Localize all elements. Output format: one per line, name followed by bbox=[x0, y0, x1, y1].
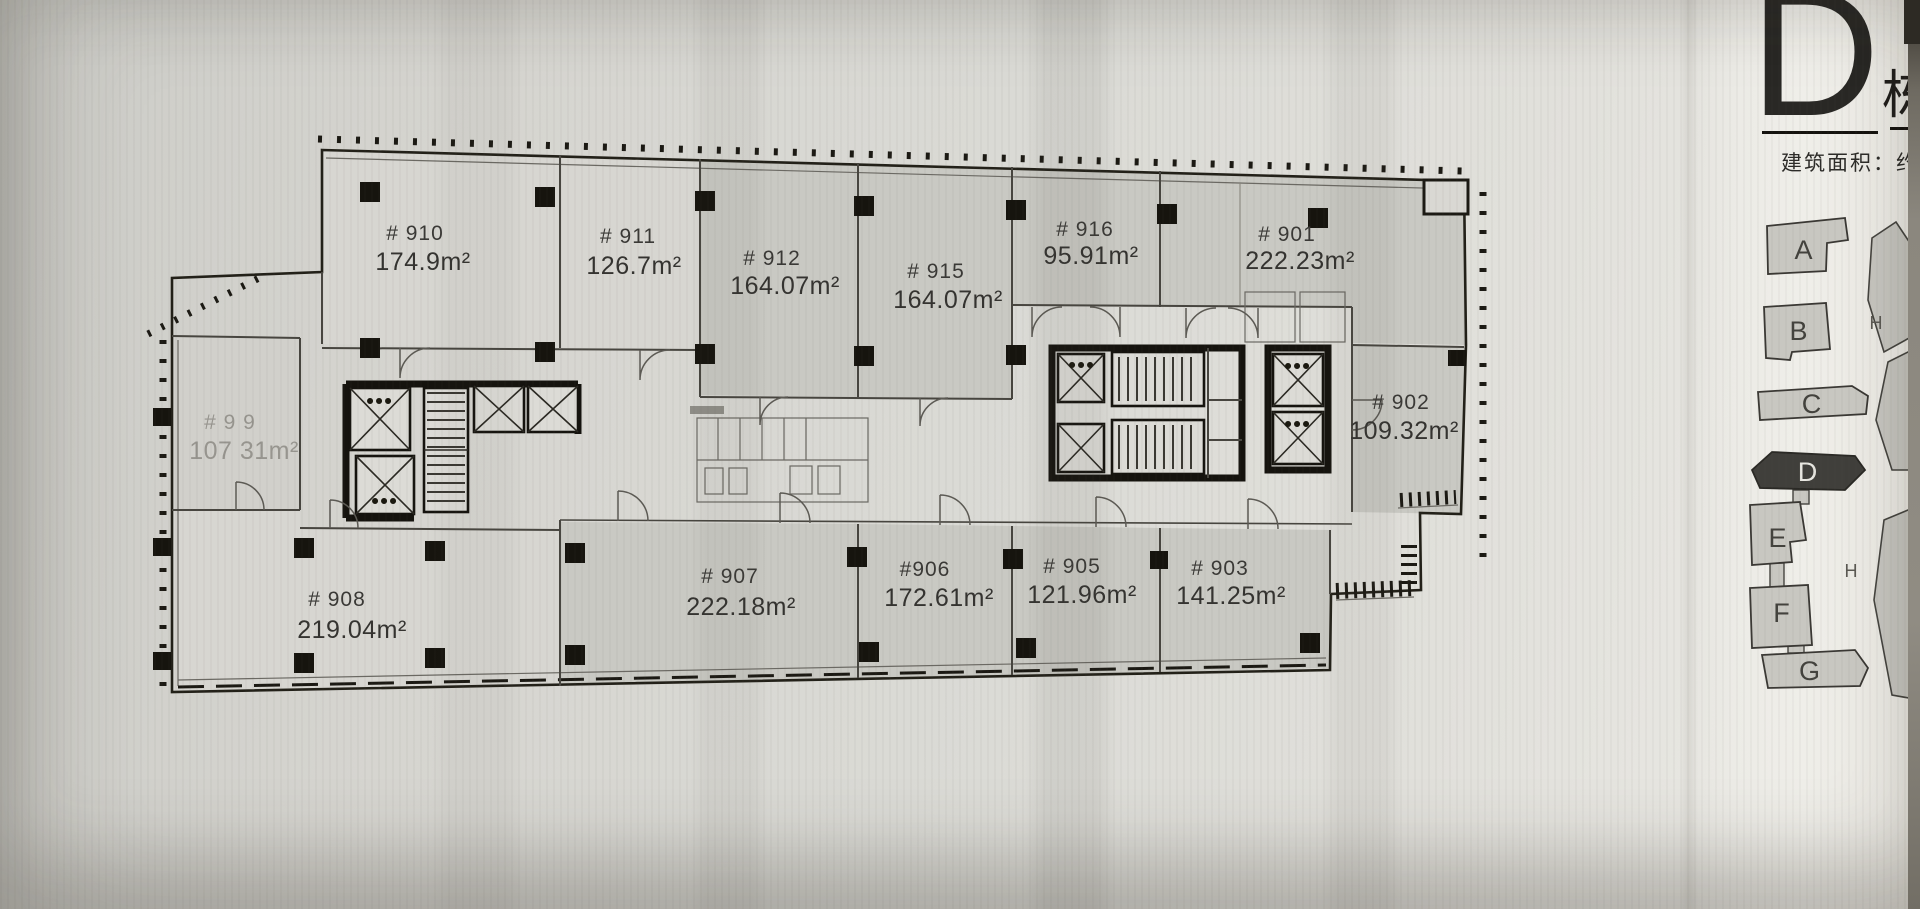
svg-text:126.7m²: 126.7m² bbox=[586, 252, 681, 280]
svg-text:# 912: # 912 bbox=[743, 247, 801, 270]
elevator-symbol bbox=[1058, 354, 1104, 402]
svg-text:# 908: # 908 bbox=[308, 588, 366, 611]
elevator-symbol bbox=[1273, 354, 1323, 406]
building-title-letter: D bbox=[1750, 0, 1880, 144]
svg-text:222.23m²: 222.23m² bbox=[1245, 247, 1355, 275]
svg-text:141.25m²: 141.25m² bbox=[1176, 582, 1286, 610]
svg-text:F: F bbox=[1773, 598, 1791, 628]
svg-text:# 907: # 907 bbox=[701, 565, 759, 588]
svg-text:E: E bbox=[1768, 523, 1787, 553]
right-core bbox=[1052, 348, 1242, 478]
elevator-symbol bbox=[356, 456, 414, 514]
svg-text:# 915: # 915 bbox=[907, 260, 965, 283]
keymap-building-e: E bbox=[1750, 502, 1806, 565]
stair-symbol bbox=[1112, 420, 1204, 474]
photo-right-edge bbox=[1908, 0, 1920, 909]
keymap-building-a: A bbox=[1767, 218, 1848, 274]
keymap-building-b: B bbox=[1764, 303, 1830, 360]
keymap-building-f: F bbox=[1750, 585, 1812, 648]
svg-text:A: A bbox=[1794, 235, 1813, 265]
svg-text:# 901: # 901 bbox=[1258, 223, 1316, 246]
svg-text:164.07m²: 164.07m² bbox=[730, 272, 840, 300]
elevator-symbol bbox=[528, 386, 578, 432]
keymap-road-label-h1: H bbox=[1870, 313, 1883, 333]
svg-text:# 903: # 903 bbox=[1191, 557, 1249, 580]
keymap-building-g: G bbox=[1762, 650, 1868, 688]
svg-text:174.9m²: 174.9m² bbox=[375, 248, 470, 276]
left-core bbox=[346, 384, 578, 518]
svg-text:# 916: # 916 bbox=[1056, 218, 1114, 241]
keymap-road-label-h2: H bbox=[1845, 561, 1858, 581]
stair-symbol bbox=[1112, 352, 1204, 406]
svg-text:G: G bbox=[1799, 656, 1821, 686]
site-key-map: A B C D E F G H H bbox=[1740, 200, 1920, 909]
svg-text:109.32m²: 109.32m² bbox=[1349, 417, 1459, 445]
scanned-floorplan-page: { "page": { "building_letter": "D", "bui… bbox=[0, 0, 1920, 909]
keymap-building-d: D bbox=[1752, 452, 1865, 490]
svg-text:# 902: # 902 bbox=[1372, 391, 1430, 414]
svg-text:219.04m²: 219.04m² bbox=[297, 616, 407, 644]
svg-text:# 9 9: # 9 9 bbox=[204, 411, 256, 434]
svg-text:#906: #906 bbox=[900, 558, 951, 581]
svg-text:# 905: # 905 bbox=[1043, 555, 1101, 578]
svg-text:172.61m²: 172.61m² bbox=[884, 584, 994, 612]
keymap-building-c: C bbox=[1758, 386, 1868, 420]
photo-corner-shadow bbox=[1904, 0, 1920, 44]
svg-text:C: C bbox=[1802, 389, 1823, 419]
svg-text:# 911: # 911 bbox=[600, 225, 656, 248]
elevator-symbol bbox=[1058, 424, 1104, 472]
elevator-symbol bbox=[474, 386, 524, 432]
stair-symbol bbox=[424, 388, 468, 512]
svg-text:222.18m²: 222.18m² bbox=[686, 593, 796, 621]
elevator-symbol bbox=[350, 388, 410, 450]
rooftop-feature bbox=[1424, 180, 1468, 214]
svg-text:# 910: # 910 bbox=[386, 222, 444, 245]
floor-plan: # 910174.9m² # 911126.7m² # 912164.07m² … bbox=[0, 0, 1920, 909]
svg-text:D: D bbox=[1798, 457, 1819, 487]
elevator-symbol bbox=[1273, 412, 1323, 464]
svg-text:164.07m²: 164.07m² bbox=[893, 286, 1003, 314]
right-elevator-pair bbox=[1268, 348, 1328, 470]
svg-text:121.96m²: 121.96m² bbox=[1027, 581, 1137, 609]
restroom-block bbox=[690, 406, 868, 502]
svg-text:107 31m²: 107 31m² bbox=[189, 437, 299, 465]
svg-text:95.91m²: 95.91m² bbox=[1043, 242, 1138, 270]
svg-text:B: B bbox=[1789, 316, 1808, 346]
area-caption: 建筑面积：约 bbox=[1781, 147, 1919, 177]
title-underline bbox=[1762, 131, 1878, 134]
